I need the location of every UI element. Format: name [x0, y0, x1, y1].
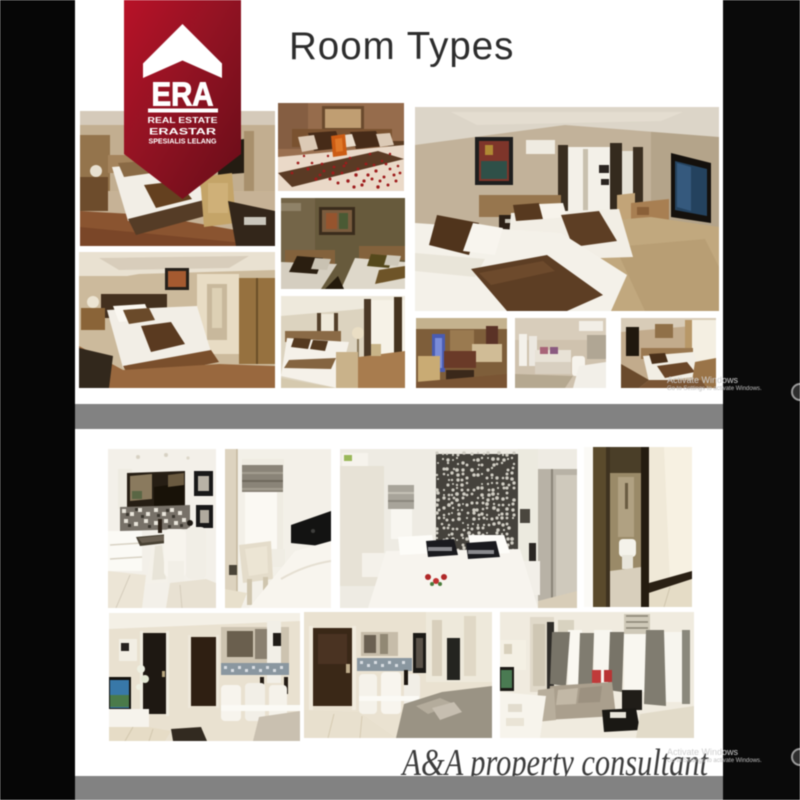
svg-text:ERASTAR: ERASTAR [149, 127, 217, 137]
svg-text:SPESIALIS LELANG: SPESIALIS LELANG [149, 139, 218, 146]
svg-text:REAL ESTATE: REAL ESTATE [148, 116, 219, 125]
svg-text:ERA: ERA [152, 76, 214, 113]
